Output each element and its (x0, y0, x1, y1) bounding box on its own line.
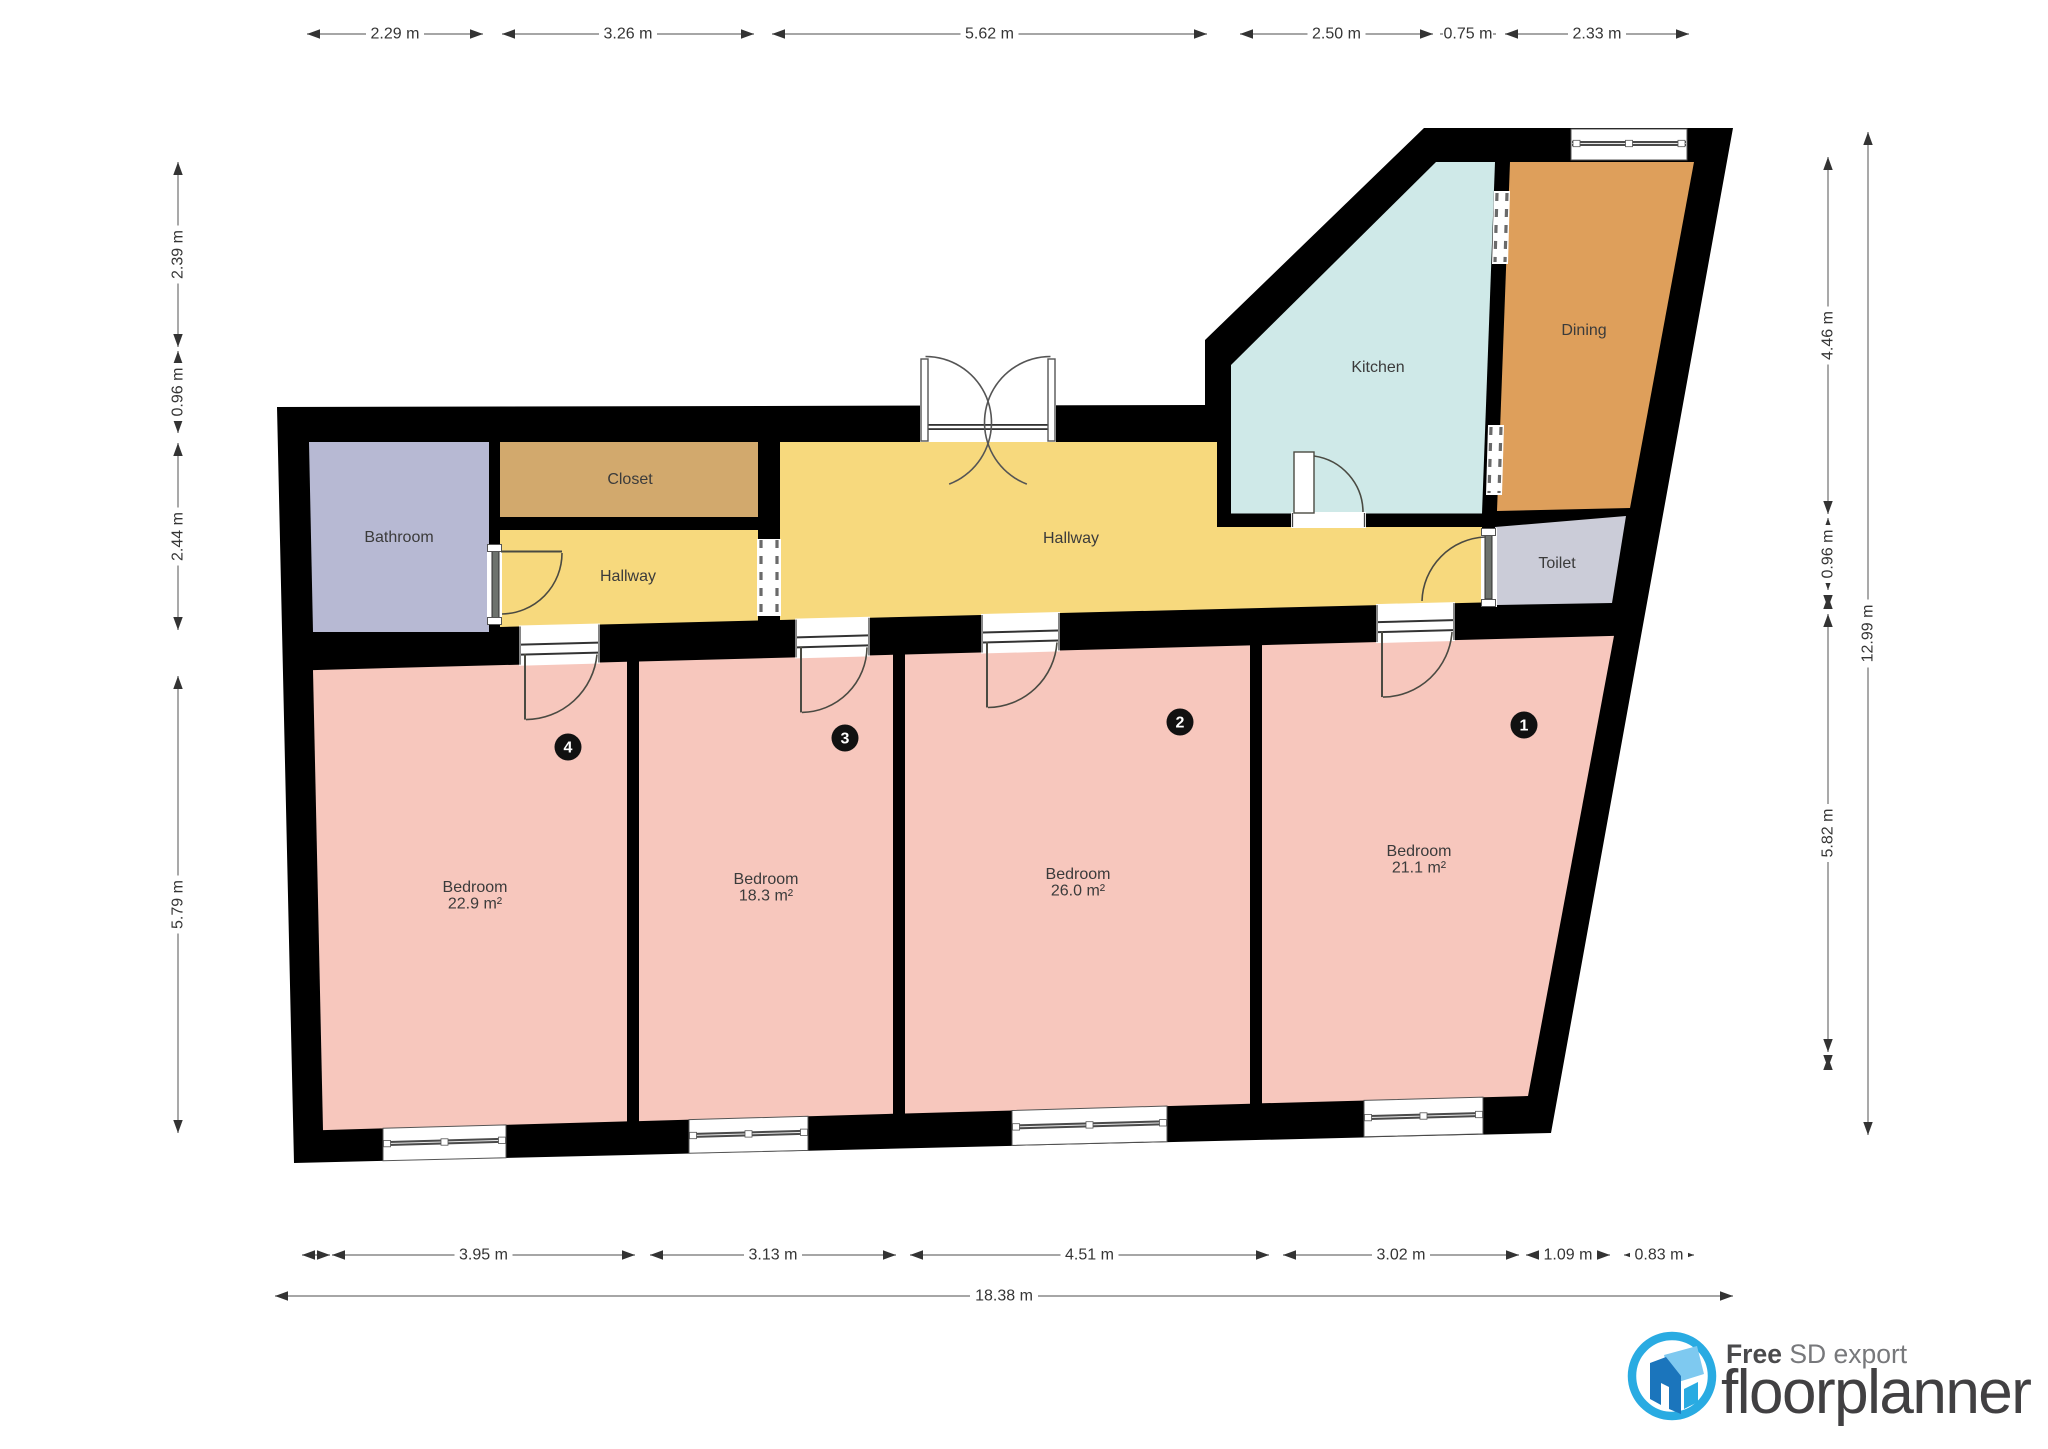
svg-text:Bathroom: Bathroom (364, 529, 433, 546)
svg-text:1.09 m: 1.09 m (1544, 1247, 1593, 1264)
svg-text:Bedroom: Bedroom (1387, 843, 1452, 860)
svg-text:4.46 m: 4.46 m (1820, 311, 1837, 360)
svg-text:18.38 m: 18.38 m (975, 1288, 1033, 1305)
svg-text:2.33 m: 2.33 m (1573, 26, 1622, 43)
svg-text:18.3 m²: 18.3 m² (739, 888, 794, 905)
svg-text:4.51 m: 4.51 m (1065, 1247, 1114, 1264)
svg-text:Kitchen: Kitchen (1351, 359, 1404, 376)
svg-text:floorplanner: floorplanner (1721, 1358, 2031, 1427)
svg-text:4: 4 (564, 740, 573, 757)
svg-text:3.02 m: 3.02 m (1377, 1247, 1426, 1264)
svg-text:22.9 m²: 22.9 m² (448, 896, 503, 913)
svg-text:2.50 m: 2.50 m (1312, 26, 1361, 43)
svg-text:Bedroom: Bedroom (734, 871, 799, 888)
svg-text:26.0 m²: 26.0 m² (1051, 883, 1106, 900)
svg-text:2.44 m: 2.44 m (170, 512, 187, 561)
svg-text:0.96 m: 0.96 m (1820, 530, 1837, 579)
svg-text:1: 1 (1520, 718, 1529, 735)
svg-text:5.82 m: 5.82 m (1820, 809, 1837, 858)
svg-text:Hallway: Hallway (600, 568, 656, 585)
svg-text:Hallway: Hallway (1043, 530, 1099, 547)
svg-text:12.99 m: 12.99 m (1860, 605, 1877, 663)
svg-text:0.75 m: 0.75 m (1444, 26, 1493, 43)
svg-text:Closet: Closet (607, 471, 653, 488)
svg-text:21.1 m²: 21.1 m² (1392, 860, 1447, 877)
svg-text:5.79 m: 5.79 m (170, 880, 187, 929)
svg-text:Bedroom: Bedroom (443, 879, 508, 896)
svg-text:3: 3 (841, 731, 850, 748)
svg-text:Dining: Dining (1561, 322, 1606, 339)
svg-text:3.13 m: 3.13 m (749, 1247, 798, 1264)
svg-text:Bedroom: Bedroom (1046, 866, 1111, 883)
svg-text:2.29 m: 2.29 m (371, 26, 420, 43)
svg-text:2.39 m: 2.39 m (170, 230, 187, 279)
svg-text:0.96 m: 0.96 m (170, 368, 187, 417)
svg-text:2: 2 (1176, 715, 1185, 732)
svg-text:3.95 m: 3.95 m (459, 1247, 508, 1264)
svg-text:3.26 m: 3.26 m (604, 26, 653, 43)
svg-text:Toilet: Toilet (1538, 555, 1576, 572)
svg-text:0.83 m: 0.83 m (1635, 1247, 1684, 1264)
svg-text:5.62 m: 5.62 m (965, 26, 1014, 43)
